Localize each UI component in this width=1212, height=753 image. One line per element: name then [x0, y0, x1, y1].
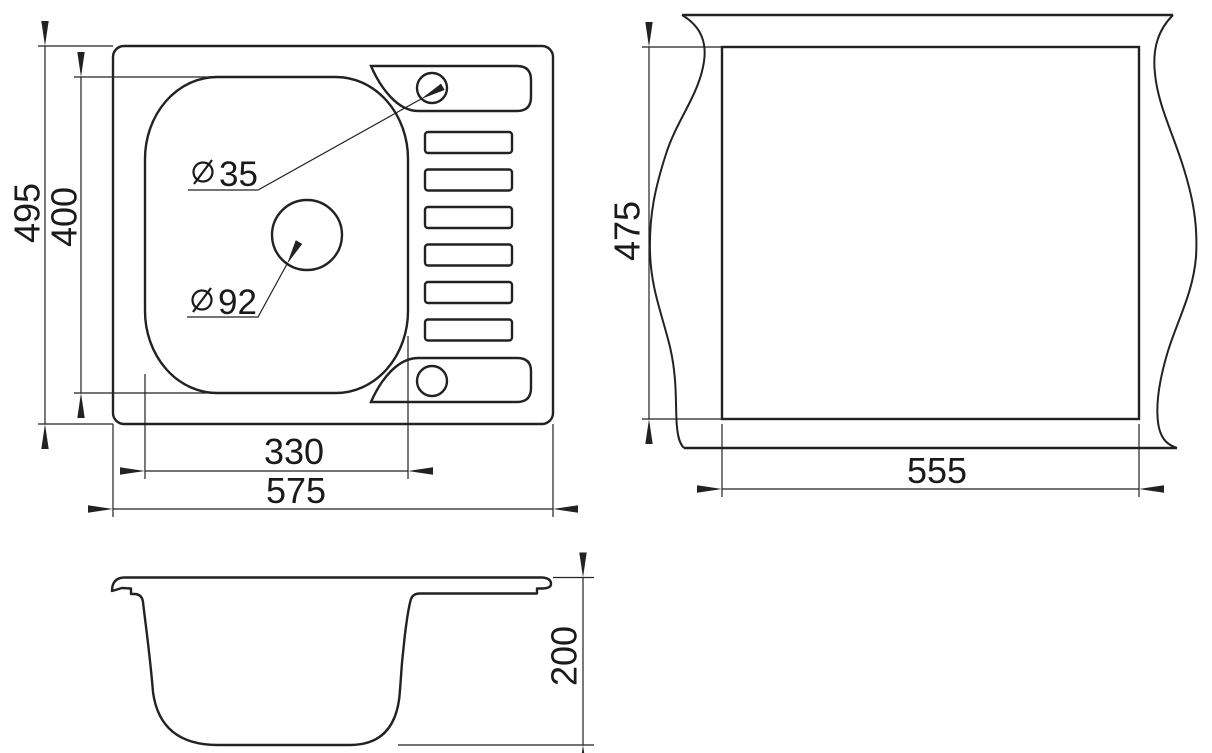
dimension-cutout-depth: 475: [607, 47, 723, 419]
dimension-bowl-depth: 400: [44, 77, 219, 393]
label-faucet-hole-diameter: 35: [219, 155, 258, 194]
label-cutout-width: 555: [907, 450, 967, 491]
side-view: 200: [112, 578, 594, 746]
label-bowl-depth: 400: [44, 187, 85, 247]
label-drain-hole-diameter: 92: [218, 283, 257, 322]
label-overall-depth: 495: [7, 183, 48, 243]
diameter-icon: [194, 160, 213, 184]
countertop-break-line-right: [1154, 15, 1196, 448]
cutout-view: 475 555: [607, 15, 1197, 497]
diameter-icon: [193, 288, 212, 312]
sink-bowl: [145, 77, 408, 393]
cutout-rectangle: [722, 47, 1139, 419]
dimension-bowl-height: 200: [398, 578, 594, 746]
drain-hole: [272, 200, 342, 270]
drainboard-slot: [425, 170, 512, 191]
mount-deck-top: [371, 66, 531, 111]
sink-profile-outline: [112, 578, 551, 746]
drawing-svg: 35 92 495 400: [0, 0, 1212, 753]
callout-faucet-hole: 35: [188, 99, 421, 194]
mount-hole: [417, 366, 447, 396]
countertop-break-line-left: [650, 15, 705, 448]
top-view: 35 92 495 400: [7, 46, 554, 517]
drainboard-slot: [425, 207, 512, 228]
sink-outer-rim: [113, 46, 553, 424]
label-bowl-width: 330: [264, 431, 324, 472]
dimension-cutout-width: 555: [722, 424, 1139, 497]
dimension-bowl-width: 330: [145, 336, 408, 479]
label-cutout-depth: 475: [607, 201, 648, 261]
drainboard-slots: [425, 132, 512, 341]
callout-drain-hole: 92: [187, 264, 287, 322]
drainboard-slot: [425, 320, 512, 341]
mount-deck-bottom: [371, 358, 531, 402]
faucet-hole: [417, 73, 447, 103]
drainboard-slot: [425, 282, 512, 303]
drainboard-slot: [425, 245, 512, 266]
drainboard-slot: [425, 132, 512, 153]
label-overall-width: 575: [266, 470, 326, 511]
label-bowl-height: 200: [544, 626, 585, 686]
technical-drawing-canvas: 35 92 495 400: [0, 0, 1212, 753]
